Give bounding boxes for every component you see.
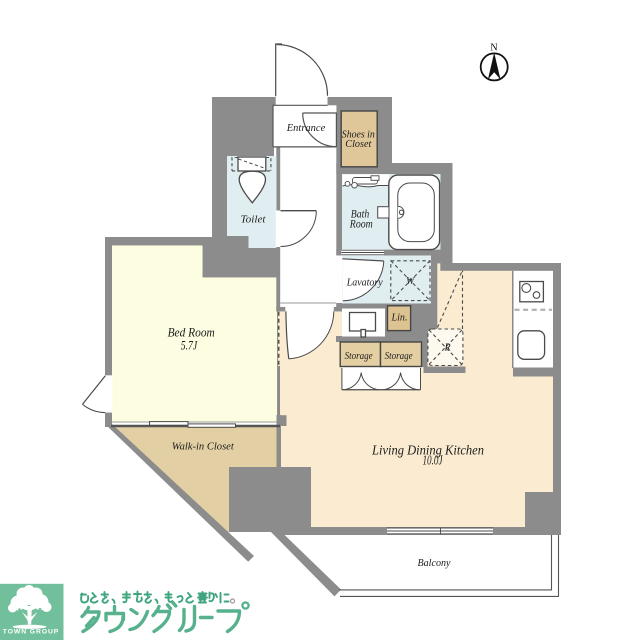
svg-text:Closet: Closet: [345, 138, 372, 150]
svg-text:10.0J: 10.0J: [423, 453, 444, 468]
svg-text:5.7J: 5.7J: [181, 337, 198, 352]
svg-text:N: N: [490, 43, 497, 54]
svg-text:Room: Room: [349, 218, 373, 230]
svg-text:TOWN GROUP: TOWN GROUP: [3, 629, 59, 636]
svg-text:Balcony: Balcony: [418, 558, 451, 569]
svg-text:Storage: Storage: [385, 351, 413, 362]
svg-text:Walk-in Closet: Walk-in Closet: [172, 440, 235, 452]
svg-text:R: R: [443, 343, 450, 354]
svg-text:Entrance: Entrance: [286, 122, 326, 134]
svg-text:Lin.: Lin.: [391, 313, 408, 324]
svg-text:Toilet: Toilet: [241, 214, 267, 225]
svg-text:Storage: Storage: [345, 351, 373, 362]
svg-text:Lavatory: Lavatory: [346, 276, 383, 288]
